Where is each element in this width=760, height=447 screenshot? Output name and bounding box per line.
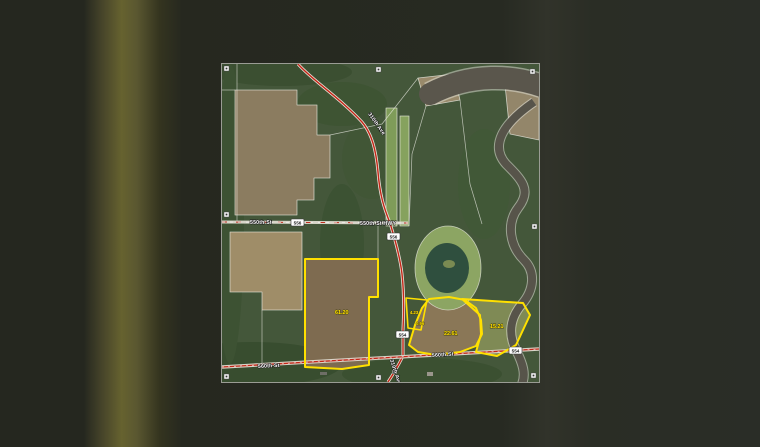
- pond-island: [443, 260, 455, 268]
- strip-green-2: [400, 116, 409, 226]
- map-canvas: 61.20 4.23 0.96 22.61 15.21 550th St 550…: [222, 64, 539, 382]
- route-badge-556-b-text: 556: [390, 234, 398, 239]
- section-marker: [531, 373, 536, 378]
- acres-label-middle: 22.61: [444, 331, 458, 337]
- building: [320, 372, 327, 375]
- road-label-550th-hwy: 550th St HWY: [360, 221, 396, 227]
- route-badge-554-a: 554: [396, 331, 409, 338]
- route-badge-554-b: 554: [509, 347, 522, 354]
- road-label-550th: 550th St: [250, 220, 272, 226]
- acres-label-small: 4.23: [410, 310, 419, 315]
- slide-background: 61.20 4.23 0.96 22.61 15.21 550th St 550…: [0, 0, 760, 447]
- section-marker: [224, 212, 229, 217]
- route-badge-554-a-text: 554: [399, 332, 407, 337]
- section-marker: [224, 374, 229, 379]
- section-marker: [376, 375, 381, 380]
- route-badge-554-b-text: 554: [512, 348, 520, 353]
- route-badge-556-a-text: 556: [294, 220, 302, 225]
- building: [427, 372, 433, 376]
- route-badge-556-a: 556: [291, 219, 304, 226]
- road-label-560th-west: 560th St: [258, 363, 280, 370]
- strip-green-1: [386, 108, 397, 226]
- aerial-map-image: 61.20 4.23 0.96 22.61 15.21 550th St 550…: [222, 64, 539, 382]
- section-marker: [532, 224, 537, 229]
- acres-label-east: 15.21: [490, 324, 504, 330]
- section-marker: [224, 66, 229, 71]
- route-badge-556-b: 556: [387, 233, 400, 240]
- section-marker: [376, 67, 381, 72]
- acres-label-tiny: 0.96: [416, 321, 425, 326]
- section-marker: [530, 69, 535, 74]
- acres-label-west: 61.20: [335, 310, 349, 316]
